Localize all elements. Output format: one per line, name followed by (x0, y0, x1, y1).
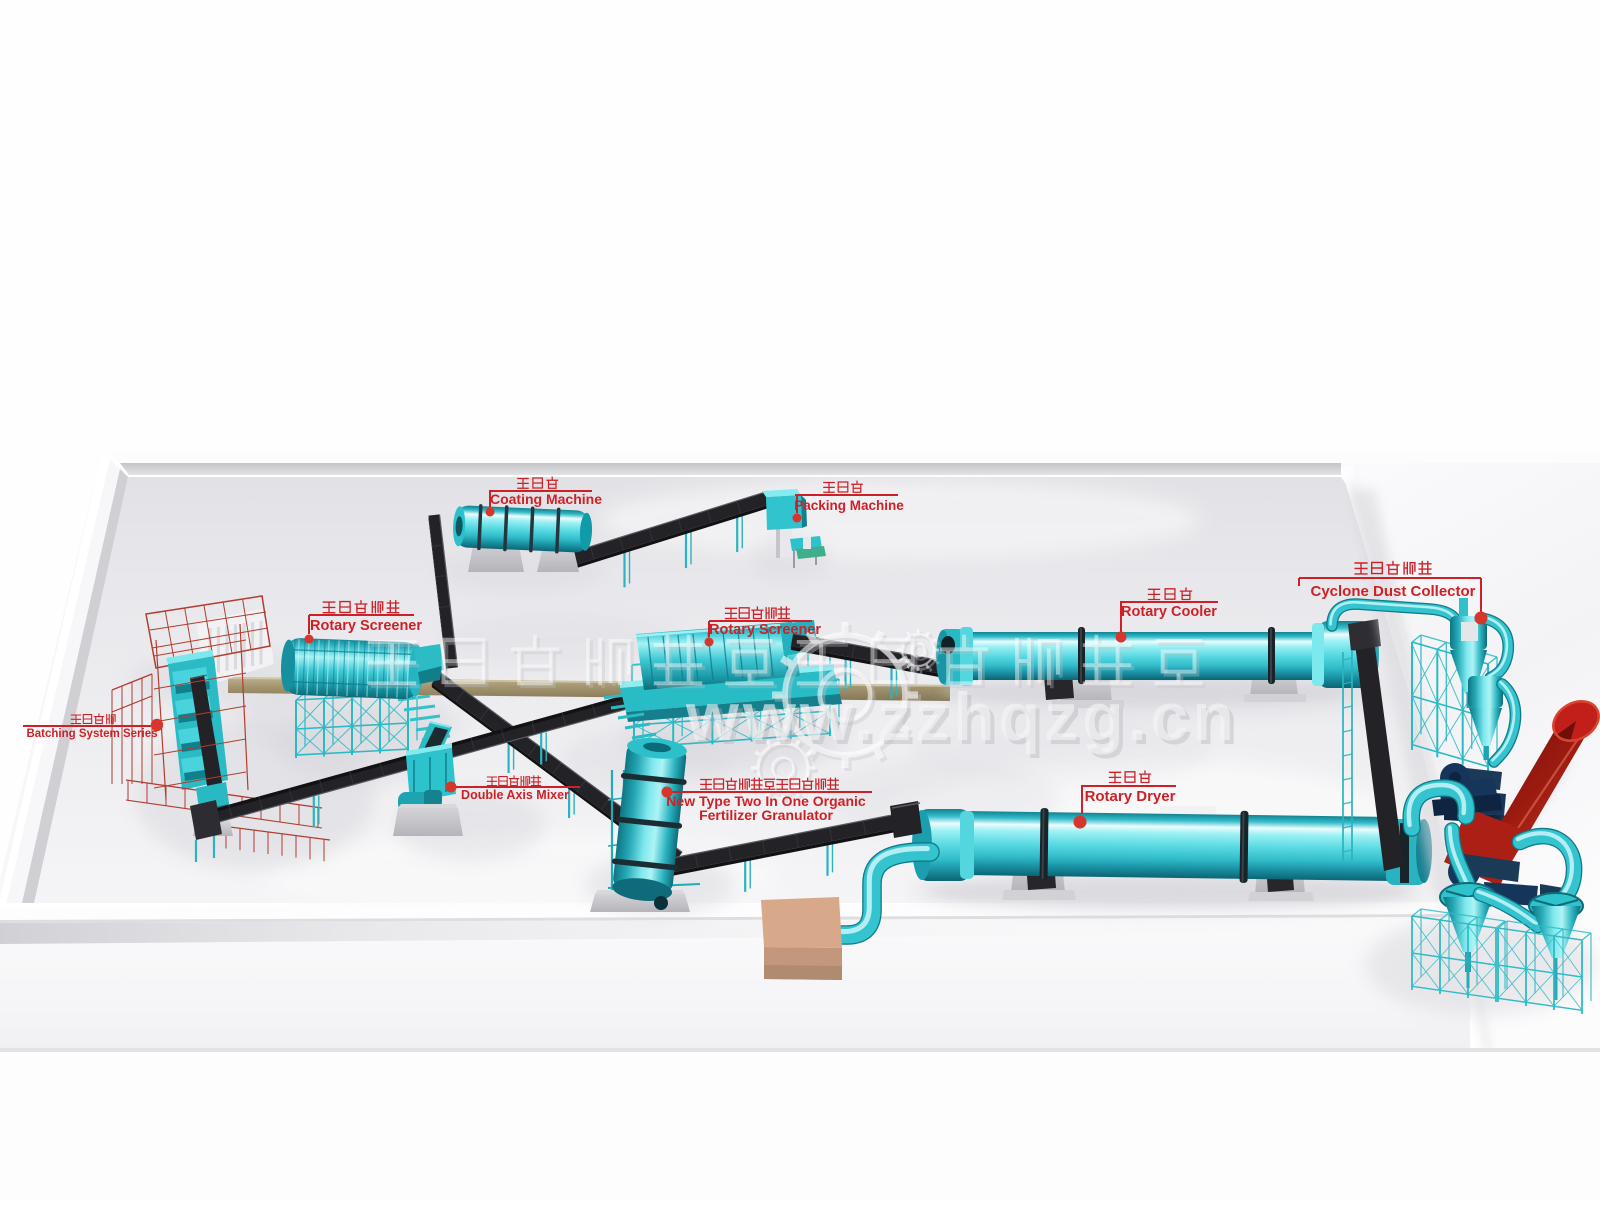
svg-text:Double Axis Mixer: Double Axis Mixer (461, 788, 569, 802)
svg-text:Fertilizer Granulator: Fertilizer Granulator (699, 807, 833, 823)
svg-text:Batching System Series: Batching System Series (26, 728, 157, 740)
svg-text:www.zzhqzg.cn: www.zzhqzg.cn (685, 679, 1238, 755)
svg-text:Coating Machine: Coating Machine (490, 491, 602, 507)
svg-text:Rotary Cooler: Rotary Cooler (1121, 604, 1217, 620)
svg-text:Rotary Screener: Rotary Screener (310, 618, 422, 634)
svg-text:Rotary Screener: Rotary Screener (709, 622, 821, 638)
svg-text:Cyclone Dust Collector: Cyclone Dust Collector (1310, 583, 1475, 600)
svg-text:Rotary Dryer: Rotary Dryer (1085, 788, 1176, 805)
svg-text:Packing Machine: Packing Machine (794, 498, 904, 513)
